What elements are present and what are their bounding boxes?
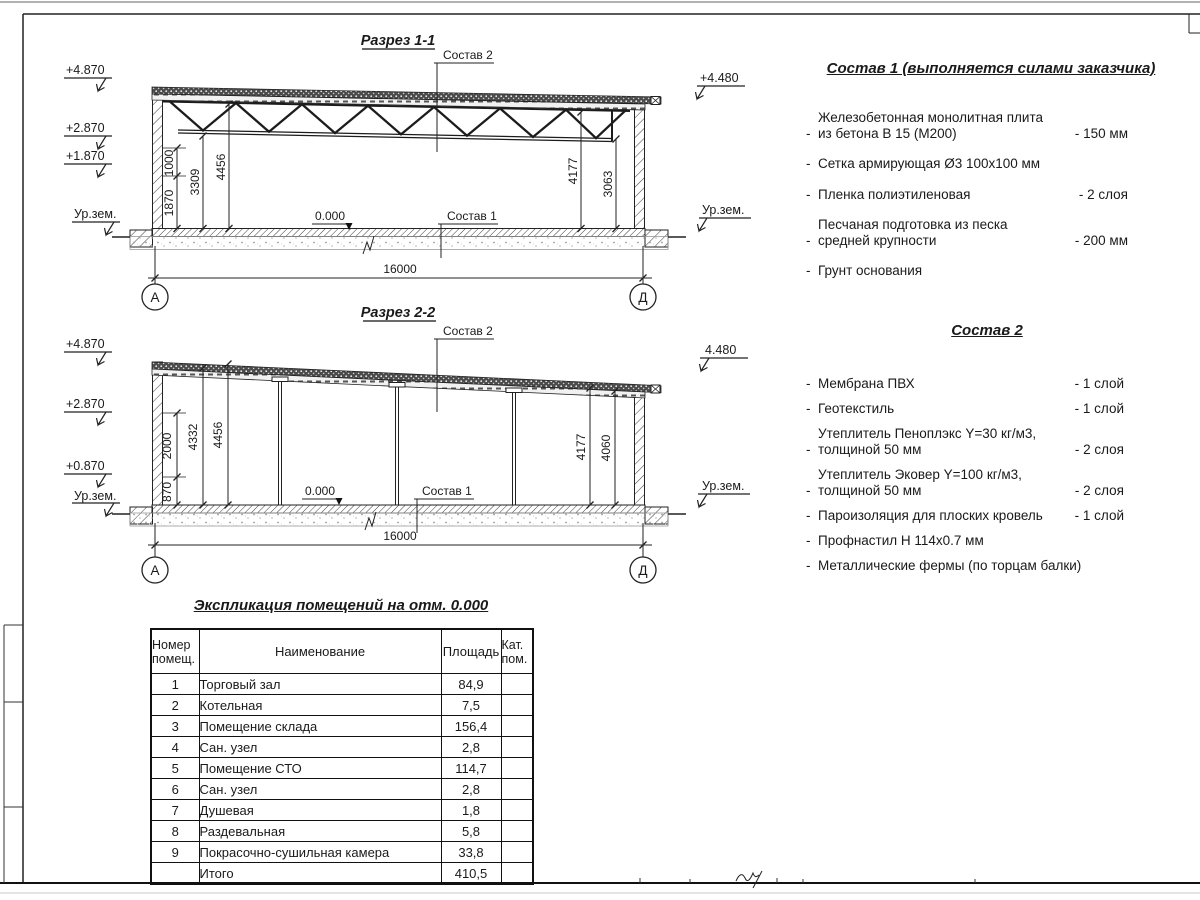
dim-2000: 2000 — [160, 432, 174, 459]
cell-cat — [501, 737, 533, 758]
table-row: 7 Душевая 1,8 — [151, 800, 533, 821]
sostav2-title: Состав 2 — [816, 322, 1158, 339]
item-text: Железобетонная монолитная плита — [818, 110, 1069, 126]
axis-letter-d: Д — [638, 563, 647, 578]
section-2-floor — [112, 505, 686, 530]
callout-sostav1: Состав 1 — [422, 484, 472, 498]
cell-num — [151, 863, 199, 885]
dim-3063: 3063 — [601, 170, 615, 197]
cell-cat — [501, 758, 533, 779]
cell-area: 2,8 — [441, 779, 501, 800]
cell-name: Помещение СТО — [199, 758, 441, 779]
table-row: 3 Помещение склада 156,4 — [151, 716, 533, 737]
left-margin-boxes — [4, 625, 23, 883]
table-row: 1 Торговый зал 84,9 — [151, 674, 533, 695]
item-value: - 1 слой — [1069, 508, 1124, 524]
table-row: 2 Котельная 7,5 — [151, 695, 533, 716]
list-item: - Пароизоляция для плоских кровель - 1 с… — [806, 508, 1124, 524]
cell-num: 8 — [151, 821, 199, 842]
dim-4456: 4456 — [211, 421, 225, 448]
item-value: - 1 слой — [1069, 401, 1124, 417]
cell-area: 114,7 — [441, 758, 501, 779]
item-value: - 2 слоя — [1069, 442, 1124, 458]
list-item: - Мембрана ПВХ - 1 слой — [806, 376, 1124, 392]
axis-letter-a: А — [150, 563, 159, 578]
cell-num: 7 — [151, 800, 199, 821]
item-dash: - — [806, 401, 818, 417]
item-dash: - — [806, 126, 818, 142]
section-2: Разрез 2-2 — [64, 305, 750, 583]
header-category: Кат.пом. — [501, 629, 533, 674]
item-text: из бетона В 15 (М200) — [818, 126, 1069, 142]
item-text: средней крупности — [818, 233, 1069, 249]
section-1-title: Разрез 1-1 — [361, 33, 435, 49]
cell-area: 410,5 — [441, 863, 501, 885]
dim-1870: 1870 — [162, 189, 176, 216]
section-2-axis-circles — [142, 557, 656, 583]
header-area: Площадь — [441, 629, 501, 674]
cell-cat — [501, 800, 533, 821]
list-item: - Геотекстиль - 1 слой — [806, 401, 1124, 417]
cell-area: 84,9 — [441, 674, 501, 695]
cell-num: 2 — [151, 695, 199, 716]
table-row: 8 Раздевальная 5,8 — [151, 821, 533, 842]
cell-name: Сан. узел — [199, 737, 441, 758]
dim-1000: 1000 — [162, 149, 176, 176]
item-value: - 2 слоя — [1069, 483, 1124, 499]
item-value: - 150 мм — [1069, 126, 1128, 142]
section-1-dimension-labels: 1870 1000 3309 4456 4177 3063 16000 — [162, 149, 615, 276]
item-text: Геотекстиль — [818, 401, 1069, 417]
elevation-label: +2.870 — [66, 121, 105, 135]
cell-name: Итого — [199, 863, 441, 885]
table-row: 9 Покрасочно-сушильная камера 33,8 — [151, 842, 533, 863]
dim-3309: 3309 — [188, 168, 202, 195]
cell-num: 5 — [151, 758, 199, 779]
list-item: - Грунт основания — [806, 263, 1128, 279]
callout-sostav2: Состав 2 — [443, 48, 493, 62]
cell-area: 1,8 — [441, 800, 501, 821]
cell-cat — [501, 674, 533, 695]
cell-cat — [501, 695, 533, 716]
cell-cat — [501, 863, 533, 885]
cell-cat — [501, 821, 533, 842]
cell-area: 5,8 — [441, 821, 501, 842]
section-2-title: Разрез 2-2 — [361, 305, 435, 321]
cell-name: Сан. узел — [199, 779, 441, 800]
cell-name: Душевая — [199, 800, 441, 821]
cell-num: 1 — [151, 674, 199, 695]
axis-letter-a: А — [150, 290, 159, 305]
item-dash: - — [806, 483, 818, 499]
ground-level-label: Ур.зем. — [74, 207, 116, 221]
dim-870: 870 — [160, 482, 174, 502]
zero-level-label: 0.000 — [315, 209, 345, 223]
cell-area: 2,8 — [441, 737, 501, 758]
dim-16000: 16000 — [383, 529, 417, 543]
dim-4456: 4456 — [214, 153, 228, 180]
signature-scribble — [736, 871, 762, 888]
table-row: 6 Сан. узел 2,8 — [151, 779, 533, 800]
header-name: Наименование — [199, 629, 441, 674]
section-1: Разрез 1-1 — [64, 33, 751, 310]
cell-num: 4 — [151, 737, 199, 758]
item-text: Утеплитель Пеноплэкс Y=30 кг/м3, — [818, 426, 1069, 442]
explication-table: Номерпомещ. Наименование Площадь Кат.пом… — [150, 628, 534, 885]
item-dash: - — [806, 263, 818, 279]
item-text: толщиной 50 мм — [818, 483, 1069, 499]
item-text: Профнастил Н 114х0.7 мм — [818, 533, 1118, 549]
cell-area: 156,4 — [441, 716, 501, 737]
table-row: 5 Помещение СТО 114,7 — [151, 758, 533, 779]
cell-cat — [501, 716, 533, 737]
item-value: - 2 слоя — [1073, 187, 1128, 203]
item-dash: - — [806, 533, 818, 549]
header-room-number: Номерпомещ. — [151, 629, 199, 674]
list-item: - Пленка полиэтиленовая - 2 слоя — [806, 187, 1128, 203]
item-text: Сетка армирующая Ø3 100х100 мм — [818, 156, 1122, 172]
explication-title: Экспликация помещений на отм. 0.000 — [150, 597, 532, 614]
elevation-label: +1.870 — [66, 149, 105, 163]
ground-level-label: Ур.зем. — [702, 203, 744, 217]
list-item: - Песчаная подготовка из пескасредней кр… — [806, 217, 1128, 248]
section-1-dimensions — [148, 101, 652, 285]
zero-level-label: 0.000 — [305, 484, 335, 498]
list-item: - Утеплитель Пеноплэкс Y=30 кг/м3,толщин… — [806, 426, 1124, 458]
elevation-label: 4.480 — [705, 343, 736, 357]
dim-16000: 16000 — [383, 262, 417, 276]
cell-area: 7,5 — [441, 695, 501, 716]
elevation-label: +4.480 — [700, 71, 739, 85]
elevation-label: +2.870 — [66, 397, 105, 411]
item-dash: - — [806, 233, 818, 249]
axis-letter-d: Д — [638, 290, 647, 305]
cell-name: Раздевальная — [199, 821, 441, 842]
cell-name: Торговый зал — [199, 674, 441, 695]
callout-sostav2: Состав 2 — [443, 324, 493, 338]
table-total-row: Итого 410,5 — [151, 863, 533, 885]
cell-name: Помещение склада — [199, 716, 441, 737]
list-item: - Сетка армирующая Ø3 100х100 мм — [806, 156, 1128, 172]
item-text: Пленка полиэтиленовая — [818, 187, 1073, 203]
list-item: - Металлические фермы (по торцам балки) — [806, 558, 1124, 574]
item-dash: - — [806, 442, 818, 458]
drawing-sheet: Разрез 1-1 — [0, 0, 1200, 900]
cell-name: Покрасочно-сушильная камера — [199, 842, 441, 863]
item-text: Утеплитель Эковер Y=100 кг/м3, — [818, 467, 1069, 483]
item-value: - 1 слой — [1069, 376, 1124, 392]
item-dash: - — [806, 376, 818, 392]
cell-num: 3 — [151, 716, 199, 737]
cell-num: 9 — [151, 842, 199, 863]
dim-4060: 4060 — [599, 434, 613, 461]
elevation-label: +4.870 — [66, 63, 105, 77]
cell-name: Котельная — [199, 695, 441, 716]
cell-num: 6 — [151, 779, 199, 800]
item-dash: - — [806, 187, 818, 203]
dim-4332: 4332 — [186, 423, 200, 450]
item-text: Мембрана ПВХ — [818, 376, 1069, 392]
list-item: - Утеплитель Эковер Y=100 кг/м3,толщиной… — [806, 467, 1124, 499]
cell-area: 33,8 — [441, 842, 501, 863]
list-item: - Железобетонная монолитная плитаиз бето… — [806, 110, 1128, 141]
table-header-row: Номерпомещ. Наименование Площадь Кат.пом… — [151, 629, 533, 674]
elevation-label: +0.870 — [66, 459, 105, 473]
item-text: Грунт основания — [818, 263, 1122, 279]
item-dash: - — [806, 558, 818, 574]
ground-level-label: Ур.зем. — [74, 489, 116, 503]
item-text: Песчаная подготовка из песка — [818, 217, 1069, 233]
item-dash: - — [806, 156, 818, 172]
item-text: Пароизоляция для плоских кровель — [818, 508, 1069, 524]
table-row: 4 Сан. узел 2,8 — [151, 737, 533, 758]
cell-cat — [501, 779, 533, 800]
section-1-floor — [112, 229, 686, 255]
item-text: Металлические фермы (по торцам балки) — [818, 558, 1118, 574]
callout-sostav1: Состав 1 — [447, 209, 497, 223]
sostav1-title: Состав 1 (выполняется силами заказчика) — [820, 60, 1162, 77]
dim-4177: 4177 — [574, 433, 588, 460]
sostav1-list: - Железобетонная монолитная плитаиз бето… — [806, 110, 1128, 294]
dim-4177: 4177 — [566, 157, 580, 184]
item-text: толщиной 50 мм — [818, 442, 1069, 458]
elevation-label: +4.870 — [66, 337, 105, 351]
item-dash: - — [806, 508, 818, 524]
sostav2-list: - Мембрана ПВХ - 1 слой - Геотекстиль - … — [806, 376, 1124, 583]
ground-level-label: Ур.зем. — [702, 479, 744, 493]
list-item: - Профнастил Н 114х0.7 мм — [806, 533, 1124, 549]
cell-cat — [501, 842, 533, 863]
item-value: - 200 мм — [1069, 233, 1128, 249]
